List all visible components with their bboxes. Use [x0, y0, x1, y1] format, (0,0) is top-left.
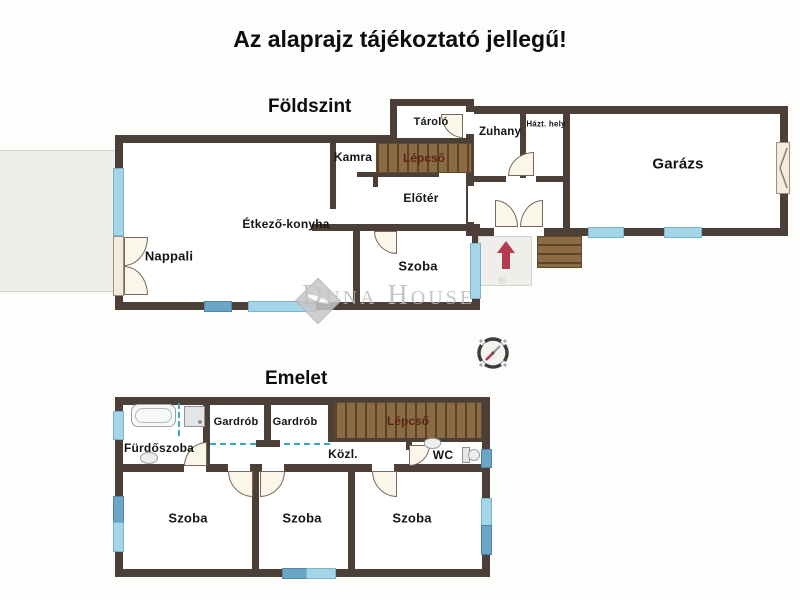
page-title: Az alaprajz tájékoztató jellegű!: [0, 26, 800, 53]
upper-floor-title: Emelet: [265, 368, 327, 390]
szoba-3-label: Szoba: [392, 511, 431, 526]
floor-plan: Az alaprajz tájékoztató jellegű! Földszi…: [0, 0, 800, 600]
compass-icon: [473, 333, 513, 373]
szoba3-window-a: [481, 498, 492, 527]
zuhany-bottom-wall-b: [536, 176, 570, 182]
garage-window-2: [664, 227, 702, 238]
garage-left-wall: [563, 112, 570, 230]
gardrob-1-label: Gardrób: [214, 416, 259, 428]
terrace-door-leafbox: [113, 236, 124, 296]
ground-stairs-label: Lépcső: [403, 151, 445, 165]
tarolo-door-gap: [463, 112, 474, 134]
wc-label: WC: [433, 448, 453, 462]
shower-icon: [184, 406, 205, 427]
szoba-2-label: Szoba: [282, 511, 321, 526]
tarolo-label: Tároló: [414, 116, 449, 128]
garazs-label: Garázs: [652, 156, 703, 173]
kozl-label: Közl.: [328, 447, 358, 461]
szoba-left-wall: [353, 224, 360, 310]
szoba2-window-b: [306, 568, 336, 579]
szoba1-window-a: [113, 496, 124, 524]
ground-szoba-label: Szoba: [398, 259, 437, 274]
gardrob-2-label: Gardrób: [273, 416, 318, 428]
nappali-label: Nappali: [145, 249, 193, 264]
nappali-window: [113, 168, 124, 236]
eloter-passage-gap: [468, 186, 480, 222]
szoba-divider-wall-1: [252, 472, 259, 569]
bathtub-icon: [131, 404, 176, 427]
ground-south-window-2: [248, 301, 316, 312]
zuhany-label: Zuhany: [479, 126, 521, 138]
etkezo-konyha-label: Étkező-konyha: [242, 217, 329, 231]
furdo-window: [113, 411, 124, 440]
upper-stairs-label: Lépcső: [387, 414, 429, 428]
stair-wall-tick: [373, 172, 378, 187]
szoba-divider-wall-2: [348, 472, 355, 569]
szoba-side-window: [470, 243, 481, 299]
szoba-top-wall: [312, 224, 480, 231]
kamra-label: Kamra: [334, 150, 372, 164]
gardrob2-rail: [284, 443, 330, 445]
corridor-wall: [123, 464, 482, 472]
entry-steps: [537, 236, 582, 268]
ground-south-window-1: [204, 301, 232, 312]
ground-floor-title: Földszint: [268, 96, 351, 118]
garage-window-1: [588, 227, 624, 238]
hazt-hely-label: Házt. hely: [526, 120, 565, 129]
wc-window: [481, 449, 492, 468]
entrance-arrow-icon: [497, 241, 515, 269]
szoba1-window-b: [113, 522, 124, 552]
szoba2-window-a: [282, 568, 308, 579]
upper-stairs: Lépcső: [334, 402, 482, 442]
zuhany-bottom-wall-a: [474, 176, 506, 182]
eloter-label: Előtér: [403, 191, 438, 205]
gardrob-rail-post: [256, 440, 280, 447]
bathtub-inner: [135, 408, 172, 423]
toilet-bowl-icon: [468, 449, 480, 461]
szoba3-window-b: [481, 525, 492, 555]
gardrob-divider-wall: [264, 403, 271, 445]
garage-door-chevron-icon: [777, 144, 789, 192]
furdoszoba-label: Fürdőszoba: [124, 441, 194, 455]
terrace: [0, 150, 122, 292]
furdo-partition-rail: [178, 403, 180, 436]
gardrob1-rail: [210, 443, 256, 445]
szoba-1-label: Szoba: [168, 511, 207, 526]
ground-stairs: Lépcső: [376, 143, 472, 173]
shower-drain: [198, 420, 202, 424]
